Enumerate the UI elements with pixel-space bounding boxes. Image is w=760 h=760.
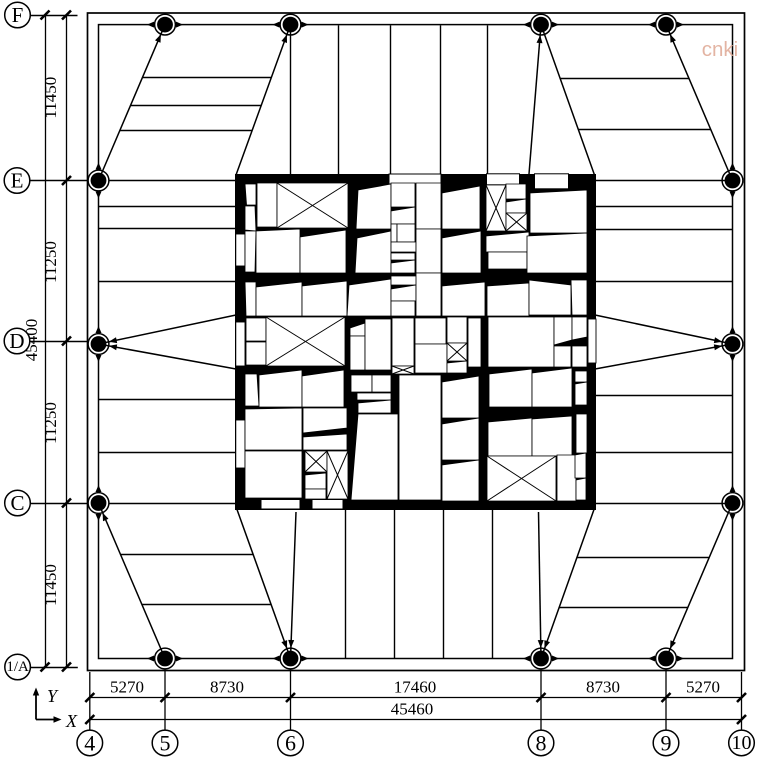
svg-text:5270: 5270: [686, 678, 720, 697]
svg-text:X: X: [65, 711, 78, 731]
svg-text:17460: 17460: [394, 678, 437, 697]
svg-text:11250: 11250: [41, 241, 60, 283]
svg-text:5270: 5270: [110, 678, 144, 697]
svg-text:E: E: [11, 169, 24, 193]
svg-text:8730: 8730: [210, 678, 244, 697]
svg-text:11450: 11450: [41, 564, 60, 606]
svg-text:6: 6: [285, 730, 296, 755]
svg-text:cnki: cnki: [702, 38, 738, 61]
svg-text:8730: 8730: [586, 678, 620, 697]
svg-text:5: 5: [160, 730, 171, 755]
svg-text:4: 4: [84, 730, 95, 755]
svg-text:11450: 11450: [41, 77, 60, 119]
svg-text:1/A: 1/A: [6, 659, 29, 675]
svg-text:8: 8: [536, 730, 547, 755]
svg-text:9: 9: [661, 730, 672, 755]
svg-text:45460: 45460: [391, 700, 434, 719]
svg-text:F: F: [12, 3, 24, 27]
svg-text:10: 10: [732, 732, 752, 754]
svg-text:D: D: [9, 329, 24, 353]
svg-text:11250: 11250: [41, 402, 60, 444]
svg-text:C: C: [10, 491, 24, 515]
